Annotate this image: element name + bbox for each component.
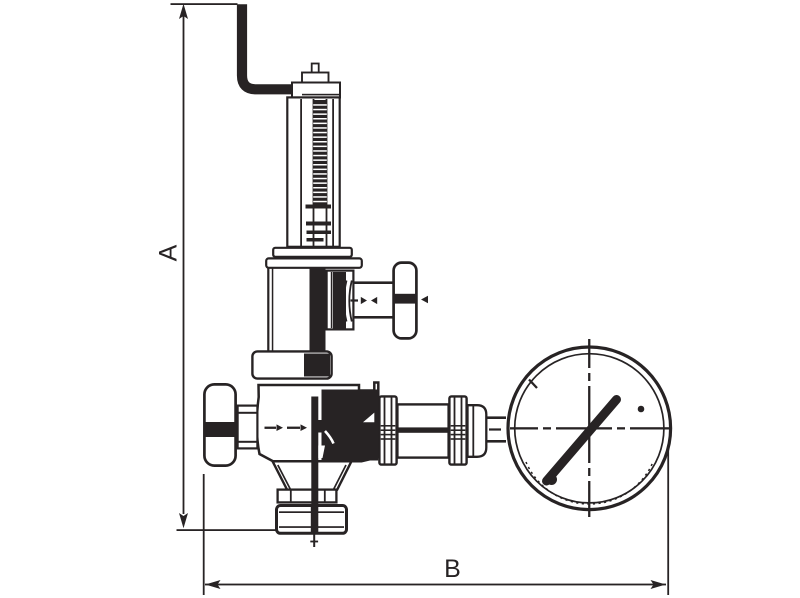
svg-text:B: B (444, 555, 461, 583)
svg-text:A: A (155, 244, 183, 261)
